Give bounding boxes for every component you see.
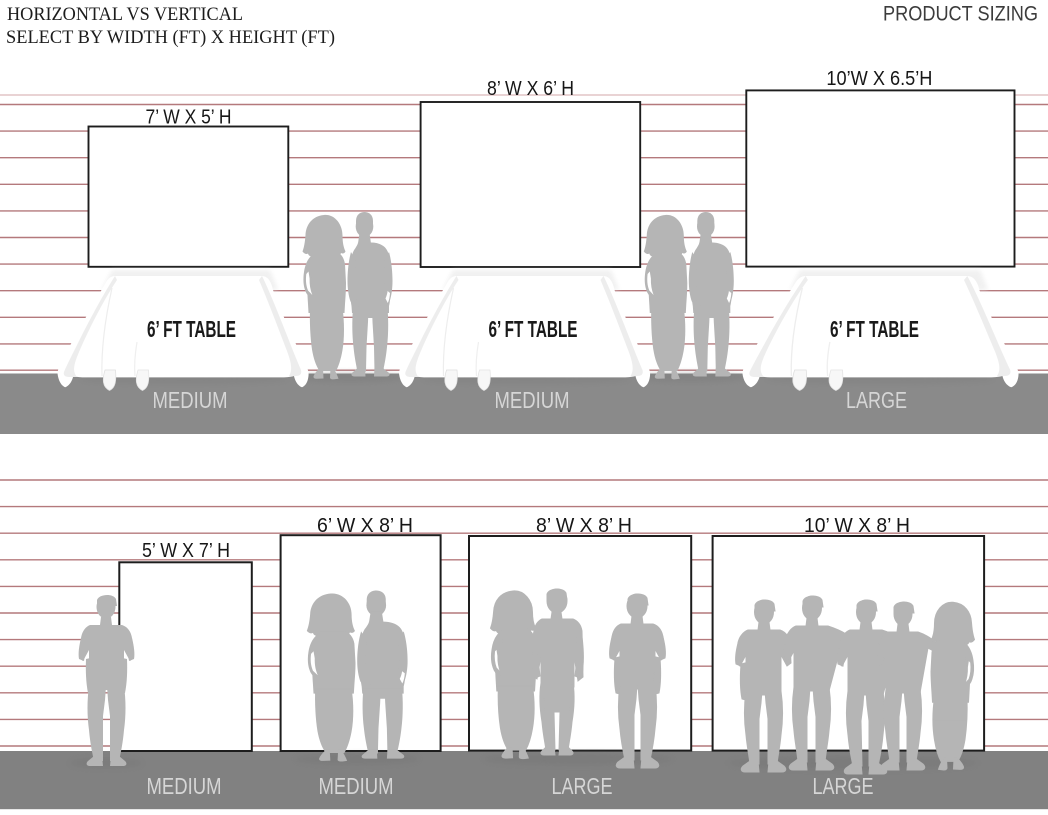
svg-text:SELECT BY WIDTH (FT) X HEIGHT: SELECT BY WIDTH (FT) X HEIGHT (FT) (6, 27, 335, 48)
svg-text:MEDIUM: MEDIUM (319, 773, 394, 799)
svg-text:10’ W X 8’ H: 10’ W X 8’ H (804, 515, 910, 537)
svg-text:LARGE: LARGE (552, 773, 613, 799)
svg-text:MEDIUM: MEDIUM (147, 773, 222, 799)
svg-text:5’ W X 7’ H: 5’ W X 7’ H (142, 540, 230, 562)
svg-text:HORIZONTAL VS VERTICAL: HORIZONTAL VS VERTICAL (7, 4, 243, 25)
svg-text:LARGE: LARGE (813, 773, 874, 799)
svg-text:8’ W X 6’ H: 8’ W X 6’ H (487, 78, 574, 100)
svg-text:8’ W X 8’ H: 8’ W X 8’ H (536, 515, 632, 537)
svg-text:PRODUCT SIZING: PRODUCT SIZING (883, 2, 1038, 26)
svg-text:MEDIUM: MEDIUM (153, 387, 228, 413)
svg-text:7’ W X 5’ H: 7’ W X 5’ H (146, 107, 232, 129)
svg-text:10’W X 6.5’H: 10’W X 6.5’H (826, 68, 932, 90)
svg-text:6’ W X 8’ H: 6’ W X 8’ H (317, 515, 413, 537)
svg-text:MEDIUM: MEDIUM (495, 387, 570, 413)
svg-text:6’ FT TABLE: 6’ FT TABLE (489, 316, 578, 342)
svg-text:6’ FT TABLE: 6’ FT TABLE (147, 316, 236, 342)
svg-text:6’ FT TABLE: 6’ FT TABLE (830, 316, 919, 342)
svg-text:LARGE: LARGE (846, 387, 907, 413)
